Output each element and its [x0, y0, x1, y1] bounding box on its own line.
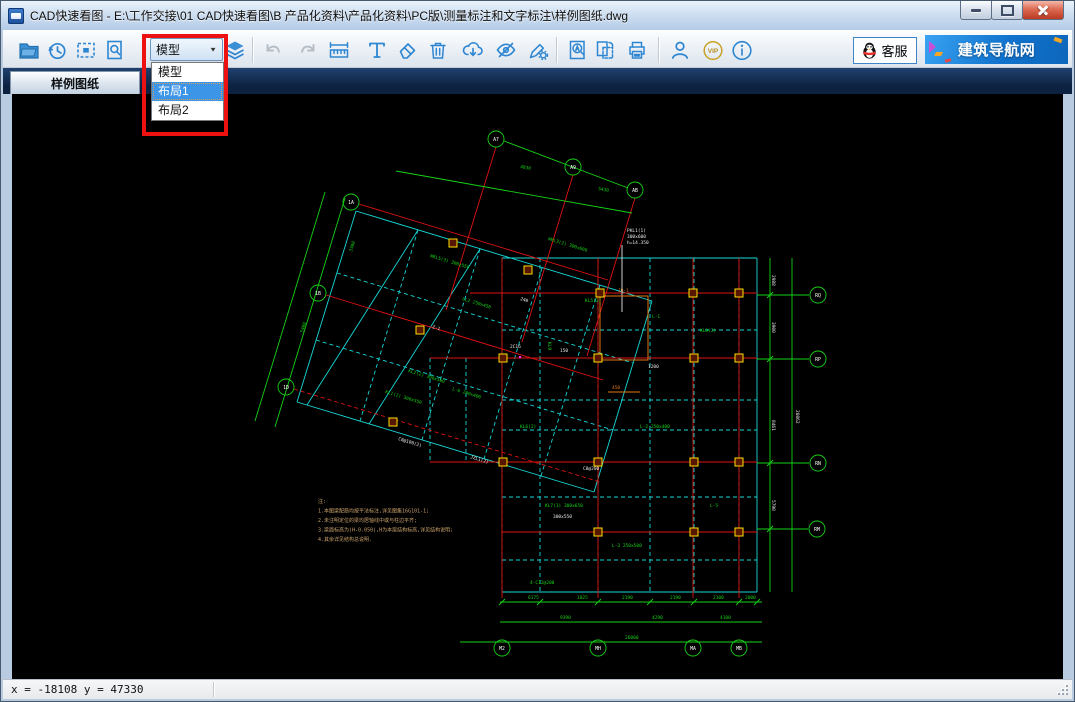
cad-annotation: 20862	[794, 410, 800, 424]
text-annotate-button[interactable]	[365, 38, 389, 62]
cad-annotation: 2100	[713, 595, 724, 601]
resize-grip[interactable]	[1058, 685, 1068, 695]
axis-bubble-label: AB	[632, 188, 638, 194]
cad-line	[326, 295, 603, 380]
column-marker	[735, 528, 743, 536]
cad-annotation: h=14.350	[627, 240, 649, 246]
canvas-area: A7A9AB1A1B1DRQRPRNRMM2MHMAMBKL1(2) 300x5…	[12, 94, 1063, 679]
axis-bubble-label: 1D	[283, 385, 289, 391]
column-marker	[499, 354, 507, 362]
cad-line	[294, 389, 600, 482]
cad-line	[396, 171, 632, 213]
cad-canvas[interactable]: A7A9AB1A1B1DRQRPRNRMM2MHMAMBKL1(2) 300x5…	[12, 94, 1063, 679]
cad-line	[541, 285, 600, 476]
cad-line	[255, 192, 325, 421]
cad-line	[369, 249, 480, 424]
cad-annotation: L-2 250x400	[640, 424, 670, 430]
find-text-button[interactable]	[566, 38, 590, 62]
axis-bubble-label: RP	[815, 357, 821, 363]
column-marker	[735, 354, 743, 362]
cad-annotation: 4-C12@200	[530, 580, 555, 586]
cad-annotation: L-1	[652, 314, 660, 320]
banner-confetti-icon	[945, 58, 952, 62]
redo-button[interactable]	[296, 38, 320, 62]
cad-annotation: L-5	[710, 503, 718, 509]
cad-annotation: KL8(2)	[700, 328, 716, 334]
column-marker	[594, 354, 602, 362]
cad-annotation: 26000	[625, 635, 639, 641]
column-marker	[735, 458, 743, 466]
cad-line	[359, 204, 608, 280]
fit-extents-button[interactable]	[74, 38, 98, 62]
nav-banner-label: 建筑导航网	[958, 39, 1036, 60]
tab-sample-drawing[interactable]: 样例图纸	[10, 71, 140, 94]
cad-annotation: 2988	[770, 275, 776, 286]
column-marker	[389, 418, 397, 426]
title-bar[interactable]: CAD快速看图 - E:\工作交接\01 CAD快速看图\B 产品化资料\产品化…	[1, 1, 1074, 30]
axis-bubble-label: 1A	[348, 200, 354, 206]
column-marker	[594, 458, 602, 466]
cad-annotation: 5400	[299, 321, 308, 333]
zoom-page-button[interactable]	[103, 38, 127, 62]
measure-button[interactable]	[327, 38, 351, 62]
cad-annotation: 5790	[770, 500, 776, 511]
history-button[interactable]	[45, 38, 69, 62]
notes-line: 3.梁面标高为(H-0.050),H为本层结构标高,详见结构说明;	[318, 527, 453, 534]
cad-annotation: PKL1(1)	[627, 228, 646, 234]
cad-annotation: KL1(2) 300x550	[384, 389, 422, 406]
column-marker	[690, 528, 698, 536]
cad-rect	[600, 296, 648, 360]
vip-label: VIP	[708, 48, 719, 55]
cad-annotation: 2C16	[510, 344, 521, 350]
cad-line	[275, 198, 345, 427]
open-file-button[interactable]	[17, 38, 41, 62]
chevron-down-icon: ▼	[209, 46, 217, 53]
column-marker	[499, 458, 507, 466]
cad-annotation: 450	[612, 385, 620, 391]
axis-bubble-label: MB	[736, 646, 742, 652]
axis-bubble-label: A7	[493, 137, 499, 143]
layout-option-model[interactable]: 模型	[152, 63, 223, 82]
cad-annotation: KL6(2)	[520, 424, 536, 430]
cad-annotation: 4100	[720, 615, 731, 621]
vip-button[interactable]: VIP	[701, 38, 725, 62]
cad-annotation: 4290	[652, 615, 663, 621]
cad-line	[587, 198, 635, 356]
toolbar-separator	[252, 37, 253, 63]
layout-dropdown[interactable]: 模型 ▼	[150, 38, 223, 61]
cad-annotation: 2190	[670, 595, 681, 601]
column-marker	[735, 289, 743, 297]
cursor-coordinates: x = -18108 y = 47330	[11, 683, 143, 696]
toolbar-separator	[658, 37, 659, 63]
column-marker	[690, 354, 698, 362]
column-marker	[524, 266, 532, 274]
cad-rect	[519, 356, 521, 358]
cad-line	[446, 147, 496, 310]
notes-line: 4.其余详见结构总说明.	[318, 536, 372, 543]
cad-annotation: WKL3(2) 300x600	[547, 236, 588, 254]
close-button[interactable]	[1022, 1, 1064, 20]
layout-option-layout1[interactable]: 布局1	[152, 82, 223, 101]
layout-dropdown-value: 模型	[156, 41, 180, 58]
cad-annotation: 2000	[745, 595, 756, 601]
axis-bubble-label: RM	[814, 527, 820, 533]
customer-service-button[interactable]: 客服	[853, 37, 917, 64]
cad-annotation: JZL1(2)	[469, 454, 489, 465]
cad-annotation: 4830	[520, 164, 532, 172]
banner-confetti-icon	[1054, 37, 1063, 43]
banner-confetti-icon	[934, 52, 943, 56]
cad-annotation: 1200	[648, 364, 659, 370]
cad-annotation: LL2 250x450	[461, 296, 492, 311]
cad-annotation: KL7(3) 300x650	[545, 503, 583, 509]
cad-annotation: 300x600	[627, 234, 646, 240]
layers-button[interactable]	[223, 38, 247, 62]
app-icon	[8, 8, 24, 24]
window-controls	[961, 1, 1064, 20]
cad-line	[316, 340, 613, 430]
notes-line: 1.本图梁配筋均按平法标注,详见图集16G101-1;	[318, 508, 429, 515]
axis-bubble-label: A9	[570, 165, 576, 171]
axis-bubble-label: M2	[499, 646, 505, 652]
toolbar-separator	[556, 37, 557, 63]
qq-penguin-icon	[862, 42, 877, 59]
nav-banner-button[interactable]: 建筑导航网	[925, 35, 1068, 64]
maximize-button[interactable]	[991, 1, 1023, 20]
cad-annotation: 3900	[770, 322, 776, 333]
cad-line	[422, 249, 480, 440]
cad-line	[297, 402, 594, 492]
close-icon	[1037, 4, 1049, 16]
cad-line	[307, 230, 418, 405]
cad-annotation: L-6 200x400	[451, 386, 482, 401]
cad-annotation: KL9	[546, 342, 552, 350]
page-layout-button[interactable]	[593, 38, 617, 62]
cad-annotation: WKL5(3) 300x550	[429, 253, 470, 271]
banner-triangle-icon	[929, 41, 936, 53]
column-marker	[690, 458, 698, 466]
column-marker	[594, 528, 602, 536]
cad-annotation: 9390	[560, 615, 571, 621]
cad-line	[297, 211, 356, 402]
info-button[interactable]	[730, 38, 754, 62]
maximize-icon	[1001, 5, 1014, 16]
cad-annotation: L-3 250x500	[612, 543, 642, 549]
cad-line	[522, 175, 573, 342]
cad-annotation: C8@200	[583, 466, 600, 472]
axis-bubble-label: 1B	[315, 291, 321, 297]
column-marker	[416, 326, 424, 334]
customer-service-label: 客服	[881, 41, 907, 60]
column-marker	[689, 289, 697, 297]
hide-eye-button[interactable]	[494, 38, 518, 62]
axis-bubble-label: RN	[815, 461, 821, 467]
axis-bubble-label: RQ	[815, 293, 821, 299]
layout-option-layout2[interactable]: 布局2	[152, 101, 223, 120]
cad-annotation: 6175	[528, 595, 539, 601]
minimize-button[interactable]	[960, 1, 992, 20]
notes-line: 2.未注明定位的梁均居轴线中或与柱边平齐;	[318, 517, 417, 524]
cad-annotation: 300x550	[553, 514, 572, 520]
user-button[interactable]	[668, 38, 692, 62]
cad-annotation: Z-1	[431, 324, 441, 332]
cad-annotation: 5430	[598, 186, 610, 194]
cad-annotation: C8@100(2)	[397, 436, 422, 449]
cad-annotation: KL5(2)	[585, 298, 601, 304]
cad-annotation: JD-1	[618, 288, 629, 294]
cad-annotation: 8461	[770, 420, 776, 431]
axis-bubble-label: MH	[595, 646, 601, 652]
layout-dropdown-list: 模型 布局1 布局2	[151, 62, 224, 121]
print-button[interactable]	[625, 38, 649, 62]
cad-annotation: 240	[519, 296, 529, 304]
statusbar-divider	[213, 682, 215, 697]
window-title: CAD快速看图 - E:\工作交接\01 CAD快速看图\B 产品化资料\产品化…	[30, 7, 628, 24]
cad-annotation: 3300	[348, 240, 357, 252]
axis-bubble-label: MA	[690, 646, 696, 652]
undo-button[interactable]	[261, 38, 285, 62]
app-window: CAD快速看图 - E:\工作交接\01 CAD快速看图\B 产品化资料\产品化…	[0, 0, 1075, 702]
column-marker	[596, 289, 604, 297]
cad-annotation: 2190	[622, 595, 633, 601]
status-bar: x = -18108 y = 47330	[3, 679, 1072, 699]
minimize-icon	[971, 9, 981, 12]
pen-settings-button[interactable]	[526, 38, 550, 62]
cad-annotation: KL2(2) 300x500	[407, 368, 445, 385]
notes-line: 注:	[318, 498, 326, 505]
cloud-download-button[interactable]	[461, 38, 485, 62]
column-marker	[449, 239, 457, 247]
cad-annotation: 150	[560, 348, 568, 354]
tab-label: 样例图纸	[51, 75, 99, 92]
cad-annotation: 1025	[577, 595, 588, 601]
trash-button[interactable]	[426, 38, 450, 62]
eraser-button[interactable]	[396, 38, 420, 62]
